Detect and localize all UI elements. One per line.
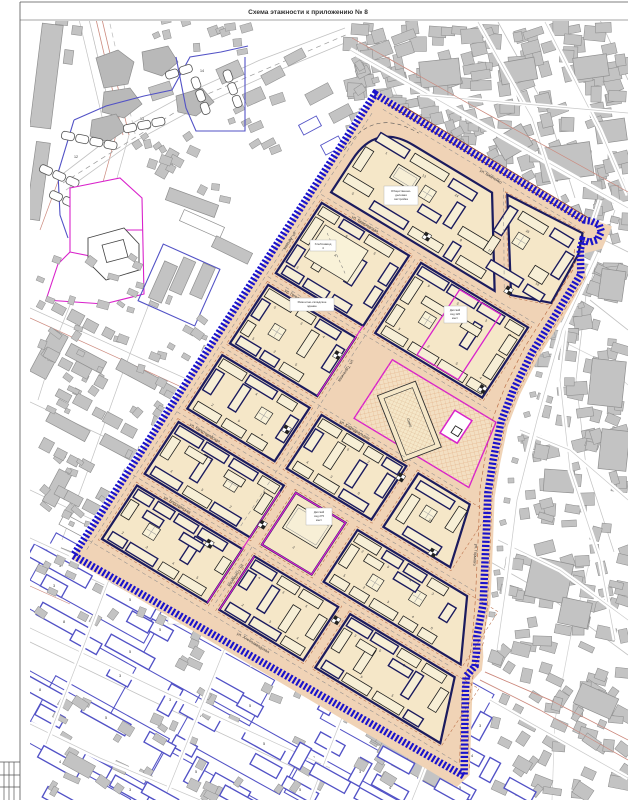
svg-text:5: 5 [299, 788, 301, 792]
svg-text:5: 5 [249, 704, 251, 708]
svg-text:3: 3 [53, 584, 55, 588]
svg-text:4: 4 [471, 754, 473, 758]
svg-text:3: 3 [129, 788, 131, 792]
svg-text:8: 8 [39, 688, 41, 692]
svg-text:13: 13 [140, 117, 144, 121]
svg-text:3: 3 [169, 698, 171, 702]
svg-text:14: 14 [200, 69, 204, 73]
svg-text:5: 5 [195, 770, 197, 774]
svg-text:мест: мест [452, 316, 459, 320]
svg-text:мест: мест [316, 518, 323, 522]
svg-text:8: 8 [63, 620, 65, 624]
svg-text:Схема этажности к приложению №: Схема этажности к приложению № 8 [248, 9, 368, 16]
svg-text:3: 3 [479, 724, 481, 728]
svg-text:12: 12 [74, 155, 78, 159]
svg-text:здание: здание [307, 304, 317, 308]
svg-text:5: 5 [129, 650, 131, 654]
svg-text:5: 5 [159, 628, 161, 632]
svg-text:5: 5 [129, 598, 131, 602]
svg-text:5: 5 [105, 716, 107, 720]
svg-text:4: 4 [59, 760, 61, 764]
svg-text:застройка: застройка [394, 197, 408, 201]
svg-text:3: 3 [359, 770, 361, 774]
svg-text:5: 5 [263, 742, 265, 746]
